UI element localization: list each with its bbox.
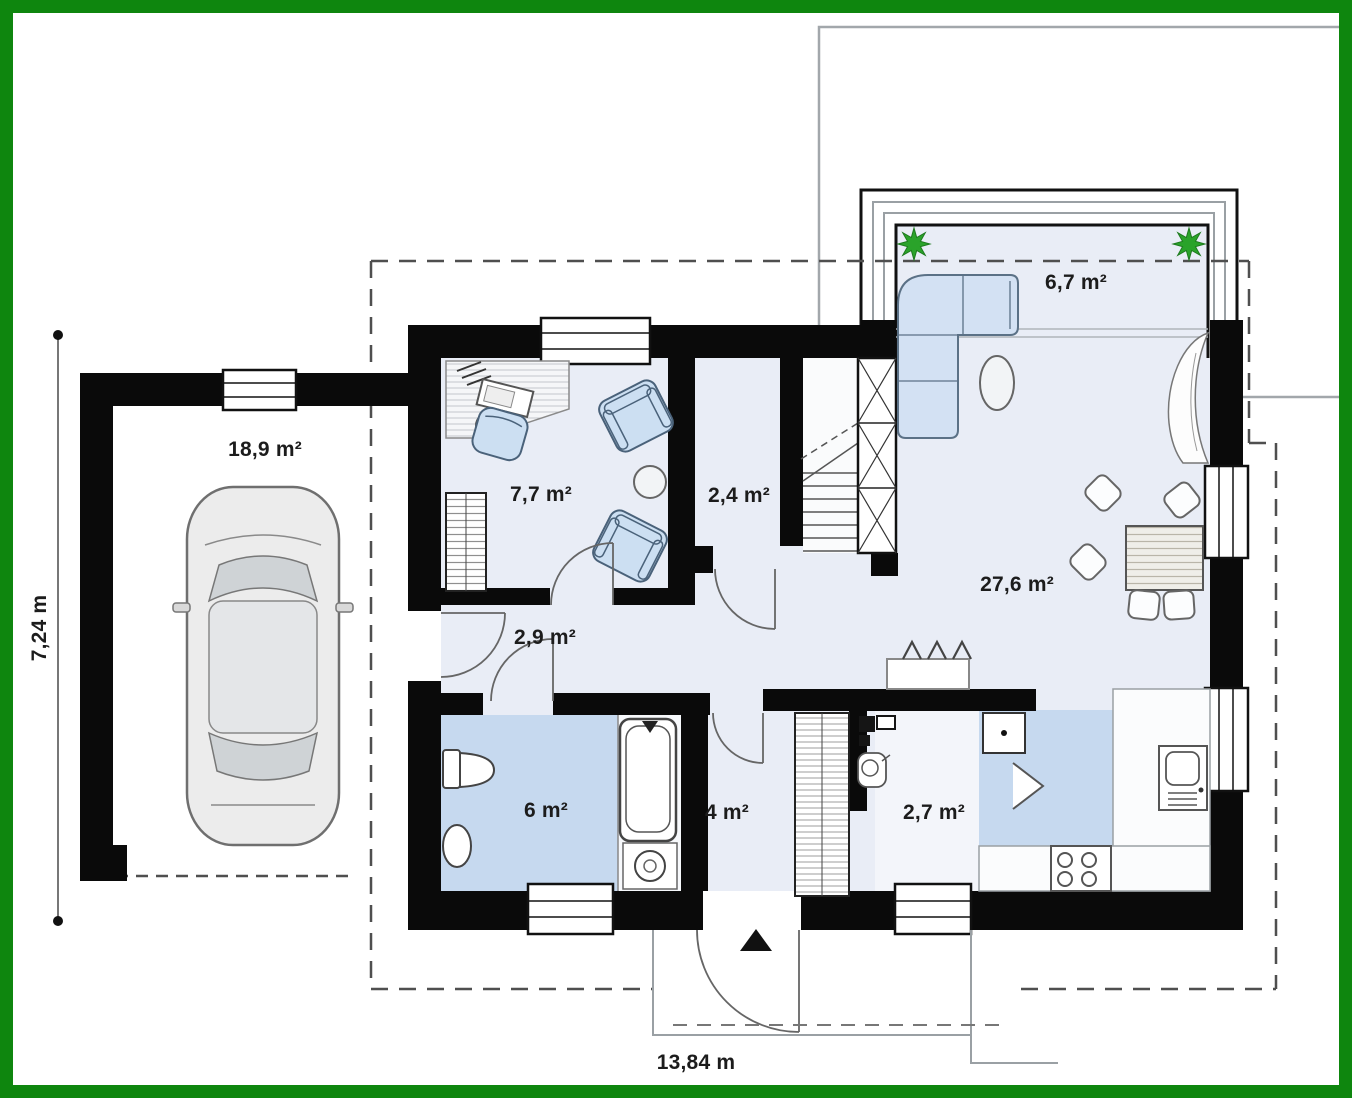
utility-area-label: 2,7 m² — [903, 801, 965, 825]
house-top-wall — [408, 325, 541, 358]
utility-unit — [877, 716, 895, 729]
bathroom-top-wall — [441, 693, 483, 715]
utility-window — [895, 884, 971, 934]
study-area-label: 7,7 m² — [510, 483, 572, 507]
dining-chair-icon — [1128, 590, 1161, 621]
study-bottom-wall — [613, 588, 668, 605]
entry-hall-area-label: 4 m² — [705, 801, 749, 825]
garage-wall-foot — [80, 845, 127, 881]
kitchen-window — [1205, 688, 1248, 791]
house-bottom-wall — [613, 891, 703, 930]
tall-cabinet-icon — [858, 358, 896, 553]
car-icon — [173, 487, 353, 845]
house-right-wall — [1210, 558, 1243, 688]
utility-unit — [859, 716, 875, 732]
closet-bottom-wall — [668, 546, 713, 573]
sink-icon — [443, 825, 471, 867]
width-dimension-label: 13,84 m — [657, 1051, 735, 1075]
house-top-wall — [650, 325, 896, 358]
house-right-wall — [1210, 320, 1243, 466]
garage-window — [223, 370, 296, 410]
terrace-area-label: 6,7 m² — [1045, 271, 1107, 295]
hall-area-label: 2,9 m² — [514, 626, 576, 650]
hall-wardrobe-icon — [795, 713, 849, 896]
living-area-label: 27,6 m² — [980, 573, 1054, 597]
stairs-floor — [803, 358, 858, 553]
bathtub-icon — [620, 719, 676, 841]
coffee-table-icon — [980, 356, 1014, 410]
stairs-foot-wall — [871, 553, 898, 576]
study-window — [541, 318, 650, 364]
living-window — [1205, 466, 1248, 558]
plant-icon — [1173, 228, 1205, 260]
utility-unit — [859, 735, 870, 746]
dining-chair-icon — [1163, 590, 1195, 620]
height-dimension-label: 7,24 m — [28, 595, 52, 662]
stairs-wall — [780, 358, 803, 546]
dining-table-icon — [1126, 526, 1203, 590]
house-bottom-wall — [971, 891, 1243, 930]
plant-icon — [898, 228, 930, 260]
house-bottom-wall — [408, 891, 528, 930]
garage-area-label: 18,9 m² — [228, 438, 302, 462]
terrace-wall-stub — [861, 320, 896, 360]
stove-icon — [1051, 846, 1111, 891]
utility-sink-icon — [858, 753, 890, 787]
boiler-icon — [983, 713, 1025, 753]
floor-plan-drawing — [13, 13, 1352, 1098]
bathroom-right-wall — [681, 693, 708, 891]
porch-outline — [653, 930, 1058, 1063]
house-left-wall — [408, 325, 441, 611]
bathroom-window — [528, 884, 613, 934]
garage-left-wall — [80, 373, 113, 845]
entrance-arrow-icon — [740, 929, 772, 951]
washer-icon — [623, 843, 677, 889]
corridor-bottom-wall — [763, 689, 1036, 711]
side-table-icon — [634, 466, 666, 498]
bathroom-area-label: 6 m² — [524, 799, 568, 823]
closet-area-label: 2,4 m² — [708, 484, 770, 508]
floor-plan-page: 18,9 m² 7,7 m² 2,4 m² 6,7 m² 27,6 m² 2,9… — [0, 0, 1352, 1098]
kitchen-sink-icon — [1159, 746, 1207, 810]
